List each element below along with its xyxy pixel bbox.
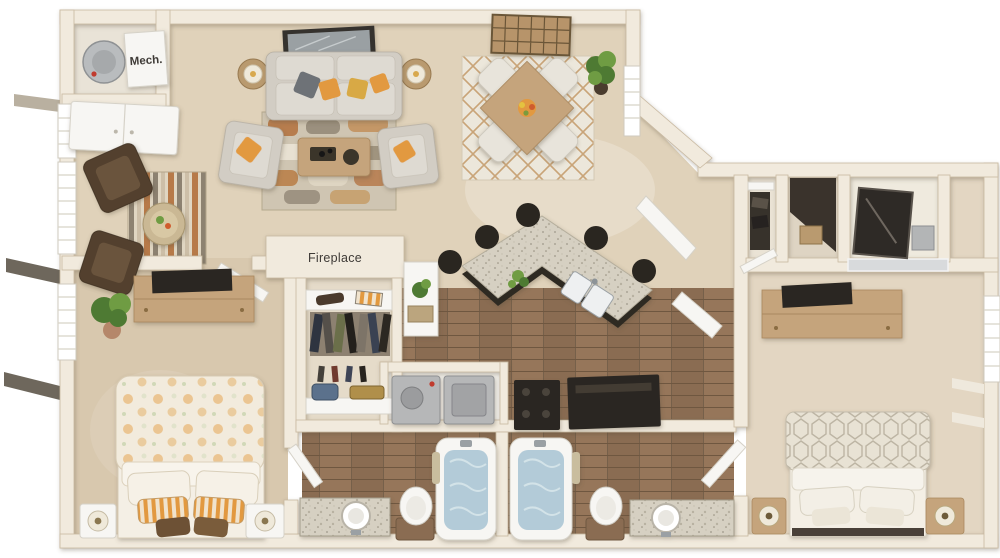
stool-2 (475, 225, 499, 249)
bedroom1-nightstand-right (246, 504, 284, 538)
floorplan-3d-render: Mech. Fireplace (0, 0, 1000, 558)
bedroom2-dresser (762, 282, 902, 338)
range (514, 380, 560, 430)
nook-table (143, 203, 185, 245)
stool-3 (516, 203, 540, 227)
wall-wing-div3 (938, 175, 950, 262)
nook-table-plant (156, 216, 164, 224)
living-window-lower (58, 162, 76, 254)
base-cabinet (567, 374, 661, 429)
bath2-vanity (630, 500, 734, 537)
bedroom1-tv (152, 269, 233, 294)
washer-indicator (429, 381, 434, 386)
bath1-vanity (300, 498, 390, 536)
bed1-throw-right (193, 516, 229, 537)
bath2-tub (510, 438, 580, 540)
wall-wing-div1 (776, 175, 788, 262)
wall-bath-divider (496, 432, 508, 536)
wall-closet1-left (296, 278, 306, 432)
dryer (444, 376, 494, 424)
bath2-tub-faucet (534, 440, 546, 447)
armchair-right (377, 123, 440, 189)
bedroom2-bed (786, 412, 930, 536)
mech-label: Mech. (129, 54, 162, 68)
bed2-trellis-headboard (786, 412, 930, 470)
side-table-left (238, 59, 268, 89)
bed2-footboard-shadow (792, 528, 924, 536)
wall-wing-div2 (838, 175, 850, 262)
wall-laundry-right (500, 362, 508, 424)
wall-bedroom2-left-b (734, 496, 748, 536)
washer (392, 376, 440, 424)
closet1-hanging-clothes (309, 312, 391, 356)
closet1-striped-box (355, 291, 382, 307)
bedroom1-nightstand-left (80, 504, 116, 538)
bath1-towel (432, 452, 440, 484)
wall-laundry-top (380, 362, 508, 372)
bedroom2-nightstand-left (752, 498, 786, 534)
shelf-basket (408, 306, 433, 322)
bed2-small-pillow-left (811, 506, 850, 526)
pillow-patterned (346, 77, 369, 100)
coffee-table (298, 138, 370, 176)
wing-corner-floor (950, 177, 986, 262)
bed1-throw-left (155, 516, 191, 537)
stool-1 (438, 250, 462, 274)
bath1-tub (432, 438, 496, 540)
bed2-small-pillow-right (865, 506, 904, 526)
bedroom1-bed (116, 376, 264, 538)
bed2-fold (792, 468, 924, 490)
wall-bedroom2-left-a (734, 175, 748, 427)
wall-left (60, 10, 74, 548)
closet1-gold-clutch (350, 386, 384, 399)
bedroom2-tv (781, 282, 852, 308)
bath2-faucet (661, 532, 671, 537)
bedroom2-nightstand-right (926, 498, 964, 534)
water-heater-valve (91, 71, 96, 76)
side-table-right (401, 59, 431, 89)
fireplace-shelf-niche (404, 262, 438, 336)
bedroom2-window (984, 296, 1000, 382)
bedroom1-dresser (134, 269, 254, 322)
bedroom1-window (58, 284, 76, 360)
floorplan-canvas: Mech. Fireplace (0, 0, 1000, 558)
wall-bedroom1-right-b (284, 500, 298, 534)
closet1-blue-bag (312, 384, 338, 400)
water-heater-cap (92, 50, 116, 74)
stool-4 (584, 226, 608, 250)
lattice-wall-decor (491, 15, 570, 56)
bedroom2-mirror-closet-door (848, 259, 948, 271)
bath2-towel (572, 452, 580, 484)
armchair-left (217, 120, 284, 190)
wing-b-box (800, 226, 822, 244)
kitchen-counter-run (514, 374, 661, 430)
bed1-floral-headboard (116, 376, 264, 472)
fireplace-label: Fireplace (308, 251, 362, 265)
dining-window (624, 66, 640, 136)
wing-c-cube (912, 226, 934, 250)
bath1-tub-faucet (460, 440, 472, 447)
window-sills-exterior (4, 94, 60, 400)
sofa (266, 52, 402, 120)
stool-5 (632, 259, 656, 283)
corner-shelf-unit (404, 262, 438, 336)
bath1-faucet (351, 530, 361, 535)
